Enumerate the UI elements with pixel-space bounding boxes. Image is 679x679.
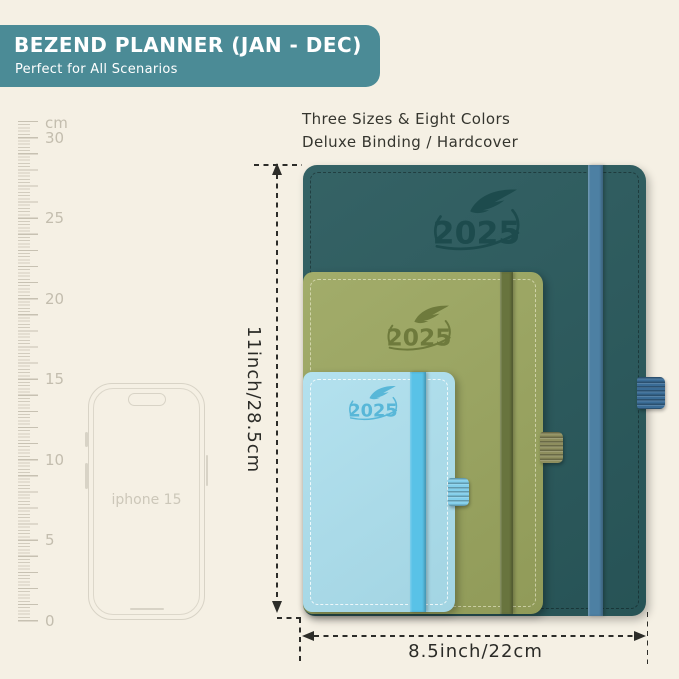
pen-loop: [448, 478, 469, 506]
phone-outline: iphone 15: [88, 383, 205, 620]
ruler-label-15: 15: [45, 370, 64, 388]
ruler-label-10: 10: [45, 451, 64, 469]
elastic-band: [500, 272, 513, 614]
width-dimension-label: 8.5inch/22cm: [388, 641, 563, 662]
feather-icon: [470, 190, 517, 214]
pen-loop: [540, 432, 563, 463]
ruler-label-30: 30: [45, 129, 64, 147]
extension-line: [647, 612, 649, 664]
cover-logo: 2025: [369, 303, 469, 359]
year-embossed: 2025: [387, 324, 452, 352]
caption-line-2: Deluxe Binding / Hardcover: [302, 131, 518, 154]
year-embossed: 2025: [433, 216, 521, 252]
ruler: [18, 121, 40, 623]
arrow-right-icon: [634, 631, 646, 641]
extension-line: [299, 618, 301, 662]
caption-line-1: Three Sizes & Eight Colors: [302, 108, 518, 131]
ruler-label-0: 0: [45, 612, 55, 630]
cover-logo: 2025: [409, 186, 544, 262]
ruler-label-20: 20: [45, 290, 64, 308]
height-dimension-line: [276, 174, 278, 602]
feather-icon: [414, 306, 449, 323]
cover-logo: 2025: [335, 384, 411, 427]
product-image: BEZEND PLANNER (JAN - DEC) Perfect for A…: [0, 0, 679, 679]
ruler-label-5: 5: [45, 531, 55, 549]
pen-loop: [637, 377, 665, 409]
caption: Three Sizes & Eight Colors Deluxe Bindin…: [302, 108, 518, 154]
height-dimension-label: 11inch/28.5cm: [243, 326, 264, 473]
extension-line: [254, 164, 302, 166]
phone-home-indicator: [130, 608, 164, 610]
phone-dynamic-island: [128, 393, 166, 406]
phone-volume-button: [85, 432, 88, 447]
arrow-down-icon: [272, 601, 282, 613]
phone-volume-button: [85, 463, 88, 489]
width-dimension-line: [314, 635, 636, 637]
arrow-left-icon: [302, 631, 314, 641]
banner-subtitle: Perfect for All Scenarios: [15, 62, 178, 77]
feather-icon: [369, 386, 395, 399]
phone-power-button: [206, 455, 209, 486]
year-embossed: 2025: [348, 401, 397, 421]
header-banner: BEZEND PLANNER (JAN - DEC) Perfect for A…: [0, 25, 380, 87]
banner-title: BEZEND PLANNER (JAN - DEC): [14, 33, 362, 57]
elastic-band: [410, 372, 426, 612]
elastic-band: [588, 165, 603, 616]
planner-small: 2025: [303, 372, 455, 612]
phone-label: iphone 15: [89, 492, 204, 508]
ruler-label-25: 25: [45, 209, 64, 227]
